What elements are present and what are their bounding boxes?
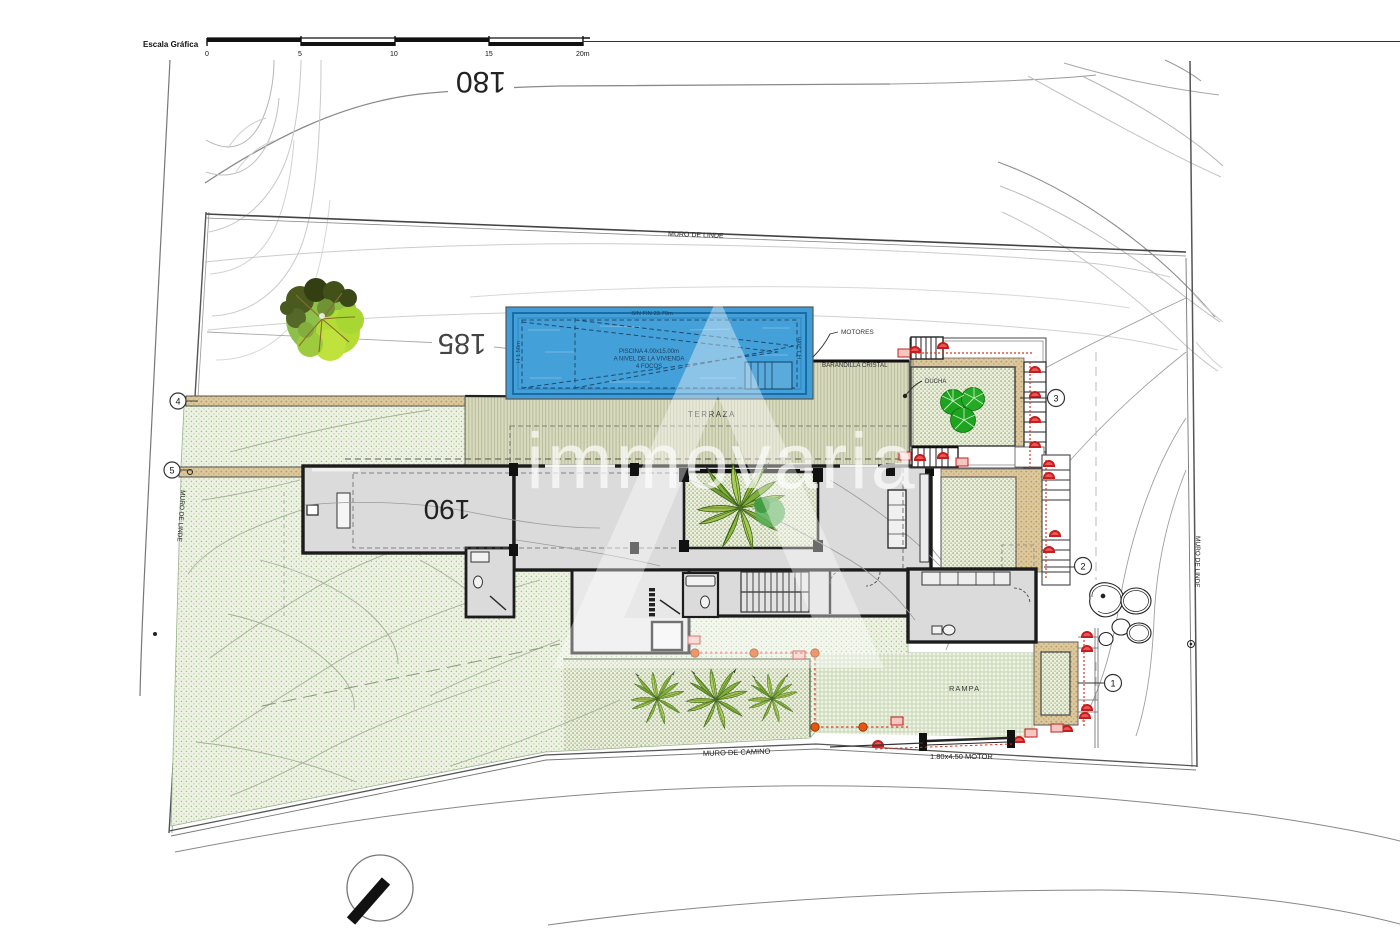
- svg-text:immovaria: immovaria: [526, 416, 917, 505]
- svg-text:20m: 20m: [576, 51, 590, 58]
- svg-text:185: 185: [438, 327, 486, 359]
- svg-text:PISCINA 4.00x15.00m: PISCINA 4.00x15.00m: [619, 349, 679, 355]
- svg-text:DUCHA: DUCHA: [925, 379, 946, 385]
- svg-text:2: 2: [1080, 562, 1085, 572]
- svg-text:RAMPA: RAMPA: [949, 684, 980, 693]
- svg-text:3: 3: [1053, 394, 1058, 404]
- svg-text:10: 10: [390, 51, 398, 58]
- svg-text:MOTORES: MOTORES: [841, 329, 874, 336]
- svg-text:BARANDILLA CRISTAL: BARANDILLA CRISTAL: [822, 362, 888, 369]
- svg-text:1.80x4.50 MOTOR: 1.80x4.50 MOTOR: [930, 752, 993, 761]
- svg-text:5: 5: [298, 51, 302, 58]
- svg-text:A NIVEL DE LA VIVIENDA: A NIVEL DE LA VIVIENDA: [614, 357, 685, 363]
- svg-text:5: 5: [169, 466, 174, 476]
- svg-text:15: 15: [485, 51, 493, 58]
- svg-text:1: 1: [1110, 679, 1115, 689]
- svg-text:4 FOCOS: 4 FOCOS: [636, 364, 662, 370]
- svg-text:190: 190: [424, 494, 471, 525]
- svg-text:MURO DE LINDE: MURO DE LINDE: [1193, 536, 1201, 588]
- svg-text:Escala Gráfica: Escala Gráfica: [143, 40, 199, 49]
- svg-text:H 1.50m: H 1.50m: [516, 341, 522, 363]
- svg-text:SIN FIN 23.70m: SIN FIN 23.70m: [631, 311, 673, 317]
- svg-text:180: 180: [456, 65, 506, 98]
- svg-text:4: 4: [175, 397, 180, 407]
- svg-text:H 1.20m: H 1.20m: [797, 337, 803, 359]
- svg-text:0: 0: [205, 51, 209, 58]
